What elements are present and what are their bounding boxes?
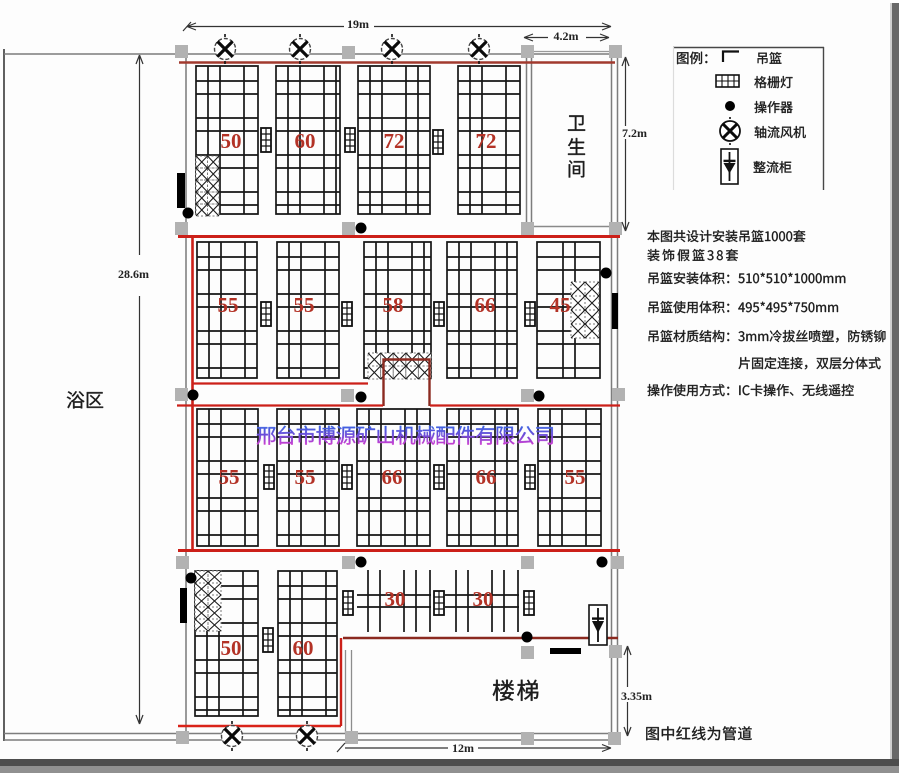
svg-text:55: 55 [565, 465, 586, 489]
svg-text:66: 66 [476, 465, 497, 489]
svg-text:50: 50 [221, 129, 242, 153]
svg-text:12m: 12m [452, 741, 474, 755]
svg-text:60: 60 [295, 129, 316, 153]
svg-text:55: 55 [219, 465, 240, 489]
svg-text:7.2m: 7.2m [622, 126, 647, 140]
svg-text:30: 30 [473, 587, 494, 611]
svg-text:66: 66 [382, 465, 403, 489]
svg-text:66: 66 [475, 293, 496, 317]
svg-text:55: 55 [295, 465, 316, 489]
svg-text:45: 45 [550, 293, 571, 317]
svg-text:50: 50 [221, 636, 242, 660]
svg-text:3.35m: 3.35m [621, 689, 652, 703]
svg-text:72: 72 [384, 129, 405, 153]
svg-text:58: 58 [383, 293, 404, 317]
svg-text:19m: 19m [347, 17, 369, 31]
svg-text:55: 55 [218, 293, 239, 317]
svg-text:55: 55 [294, 293, 315, 317]
svg-text:60: 60 [293, 636, 314, 660]
svg-text:72: 72 [476, 129, 497, 153]
svg-text:30: 30 [385, 587, 406, 611]
svg-text:28.6m: 28.6m [118, 267, 149, 281]
svg-text:4.2m: 4.2m [554, 29, 579, 43]
